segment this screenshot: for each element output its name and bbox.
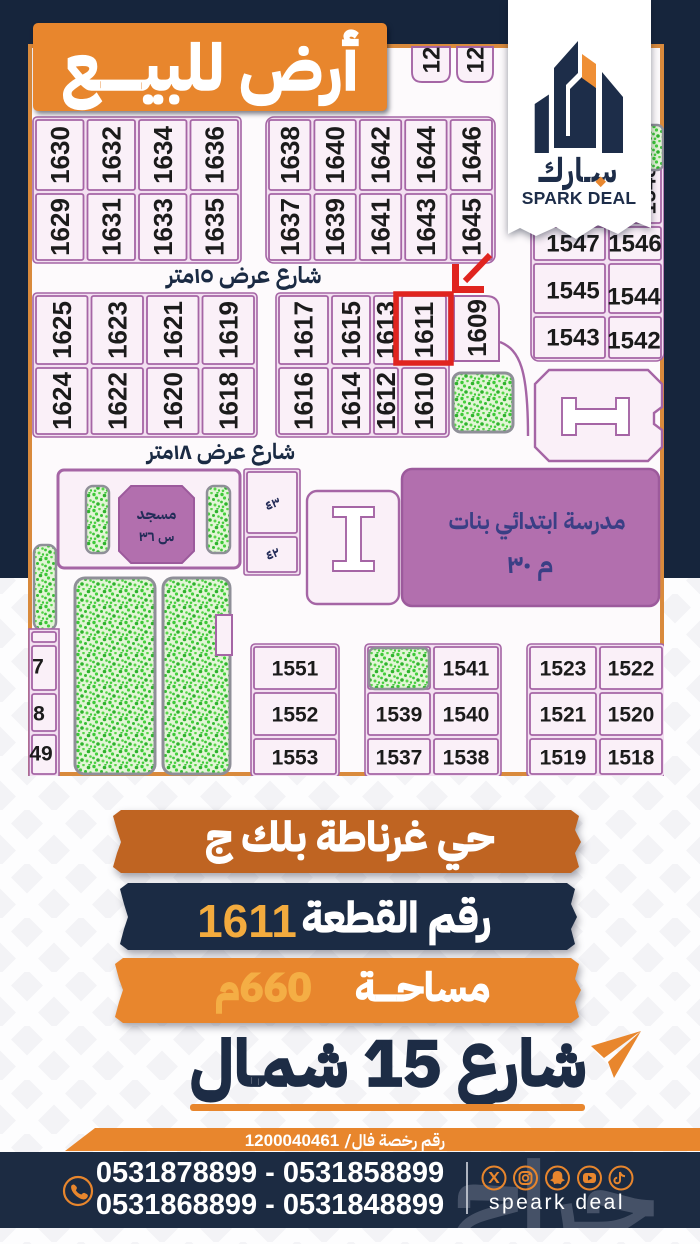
svg-text:0531868899 - 0531848899: 0531868899 - 0531848899 bbox=[96, 1189, 444, 1221]
svg-text:1200040461: 1200040461 bbox=[245, 1131, 340, 1150]
svg-text:1638: 1638 bbox=[275, 126, 305, 184]
svg-text:1552: 1552 bbox=[272, 703, 319, 726]
svg-text:1645: 1645 bbox=[456, 198, 486, 256]
svg-text:1640: 1640 bbox=[320, 126, 350, 184]
svg-text:1629: 1629 bbox=[45, 198, 75, 256]
svg-text:1615: 1615 bbox=[336, 301, 366, 359]
svg-text:1616: 1616 bbox=[289, 372, 319, 430]
svg-text:1631: 1631 bbox=[96, 198, 126, 256]
svg-text:1619: 1619 bbox=[213, 301, 243, 359]
svg-text:1633: 1633 bbox=[148, 198, 178, 256]
svg-text:1537: 1537 bbox=[376, 746, 423, 769]
svg-text:1609: 1609 bbox=[462, 299, 492, 357]
svg-text:1545: 1545 bbox=[546, 277, 599, 304]
svg-text:1518: 1518 bbox=[608, 746, 655, 769]
svg-text:8: 8 bbox=[33, 702, 45, 725]
svg-text:12: 12 bbox=[418, 47, 445, 74]
svg-text:1553: 1553 bbox=[272, 746, 319, 769]
svg-text:49: 49 bbox=[29, 742, 52, 765]
svg-text:1632: 1632 bbox=[96, 126, 126, 184]
svg-text:1541: 1541 bbox=[443, 657, 490, 680]
svg-text:1625: 1625 bbox=[47, 301, 77, 359]
svg-text:1618: 1618 bbox=[213, 372, 243, 430]
svg-text:1544: 1544 bbox=[607, 283, 661, 310]
svg-text:1522: 1522 bbox=[608, 657, 655, 680]
svg-text:1543: 1543 bbox=[546, 324, 599, 351]
svg-text:1523: 1523 bbox=[540, 657, 587, 680]
svg-text:1646: 1646 bbox=[456, 126, 486, 184]
svg-text:1520: 1520 bbox=[608, 703, 655, 726]
svg-text:1630: 1630 bbox=[45, 126, 75, 184]
svg-text:1539: 1539 bbox=[376, 703, 423, 726]
svg-text:12: 12 bbox=[462, 47, 489, 74]
svg-text:1624: 1624 bbox=[47, 372, 77, 430]
svg-text:1641: 1641 bbox=[366, 198, 396, 256]
svg-text:1634: 1634 bbox=[148, 126, 178, 184]
svg-text:1637: 1637 bbox=[275, 198, 305, 256]
svg-text:1642: 1642 bbox=[366, 126, 396, 184]
svg-text:1635: 1635 bbox=[199, 198, 229, 256]
svg-text:1519: 1519 bbox=[540, 746, 587, 769]
svg-text:1617: 1617 bbox=[289, 301, 319, 359]
svg-text:1621: 1621 bbox=[158, 301, 188, 359]
svg-text:1540: 1540 bbox=[443, 703, 490, 726]
svg-text:1614: 1614 bbox=[336, 372, 366, 430]
svg-text:1622: 1622 bbox=[102, 372, 132, 430]
svg-text:1620: 1620 bbox=[158, 372, 188, 430]
svg-text:1643: 1643 bbox=[411, 198, 441, 256]
svg-text:1551: 1551 bbox=[272, 657, 319, 680]
svg-text:1610: 1610 bbox=[409, 372, 439, 430]
svg-text:1538: 1538 bbox=[443, 746, 490, 769]
svg-text:speark deal: speark deal bbox=[489, 1191, 625, 1214]
svg-text:1644: 1644 bbox=[411, 126, 441, 184]
svg-text:1639: 1639 bbox=[320, 198, 350, 256]
svg-text:1623: 1623 bbox=[102, 301, 132, 359]
svg-text:1612: 1612 bbox=[371, 372, 401, 430]
svg-text:1636: 1636 bbox=[199, 126, 229, 184]
svg-text:1542: 1542 bbox=[607, 327, 660, 354]
svg-text:1611: 1611 bbox=[197, 895, 297, 947]
svg-text:1521: 1521 bbox=[540, 703, 587, 726]
svg-text:SPARK DEAL: SPARK DEAL bbox=[522, 188, 637, 208]
svg-text:1611: 1611 bbox=[409, 302, 439, 358]
svg-text:7: 7 bbox=[32, 655, 44, 678]
svg-text:0531878899 - 0531858899: 0531878899 - 0531858899 bbox=[96, 1157, 444, 1189]
